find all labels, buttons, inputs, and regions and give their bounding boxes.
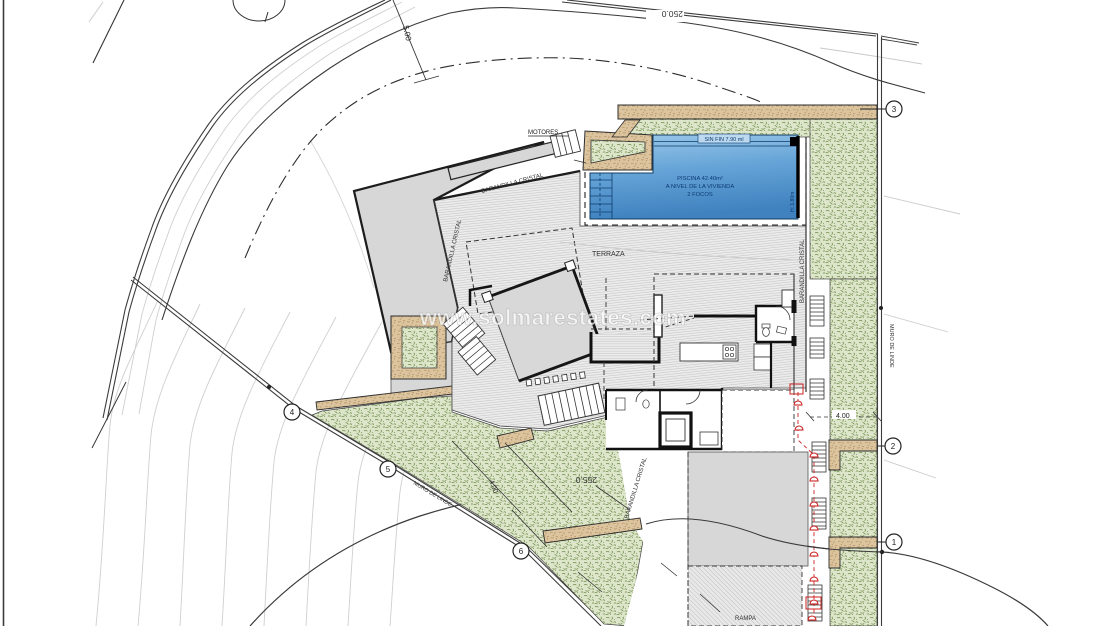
svg-text:SIN FIN 7.90 ml: SIN FIN 7.90 ml (704, 137, 743, 143)
svg-text:H: 1.80m: H: 1.80m (790, 192, 796, 212)
svg-text:2 FOCOS: 2 FOCOS (687, 192, 713, 198)
svg-text:TERRAZA: TERRAZA (592, 251, 625, 258)
svg-text:4: 4 (290, 408, 295, 417)
svg-text:MOTORES: MOTORES (528, 130, 558, 136)
svg-text:MURO DE LINDE: MURO DE LINDE (888, 324, 894, 368)
svg-text:255.0: 255.0 (575, 475, 597, 485)
svg-text:www.solmarestates.com: www.solmarestates.com (419, 305, 686, 330)
svg-text:2: 2 (891, 442, 896, 451)
svg-text:3: 3 (892, 105, 897, 114)
svg-text:A NIVEL DE LA VIVIENDA: A NIVEL DE LA VIVIENDA (666, 184, 735, 190)
svg-text:PISCINA 42.40m²: PISCINA 42.40m² (677, 176, 723, 182)
svg-text:6: 6 (519, 547, 524, 556)
svg-text:5: 5 (386, 465, 391, 474)
svg-text:BARANDILLA CRISTAL: BARANDILLA CRISTAL (800, 239, 806, 303)
svg-text:250.0: 250.0 (661, 9, 683, 19)
svg-text:RAMPA: RAMPA (735, 616, 756, 622)
svg-text:4.00: 4.00 (836, 413, 850, 420)
svg-text:1: 1 (892, 538, 897, 547)
